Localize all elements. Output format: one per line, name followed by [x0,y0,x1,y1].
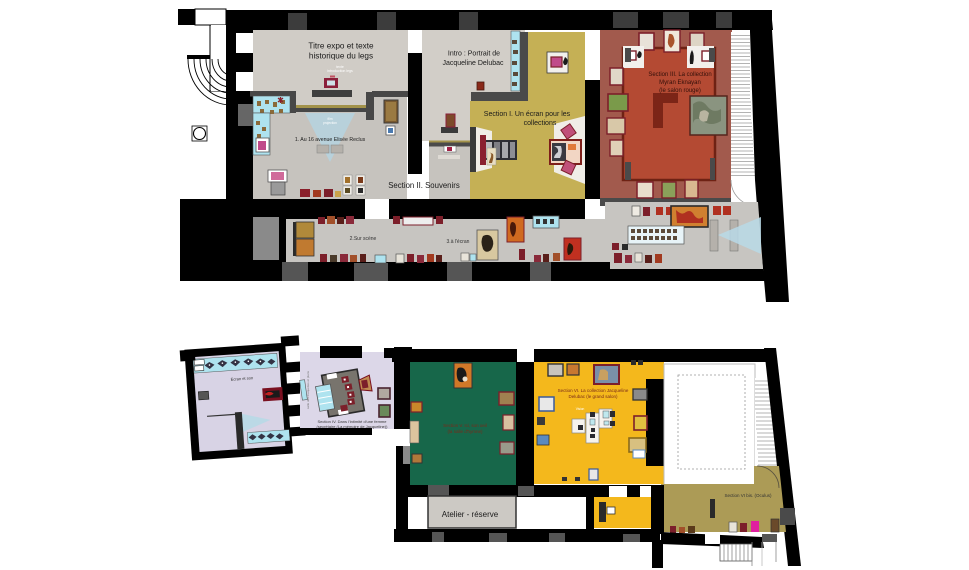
svg-text:Section I. Un écran pour les: Section I. Un écran pour les [484,111,571,118]
svg-text:Vision: Vision [576,407,585,411]
svg-text:(secrétaire (La mémoire de Jac: (secrétaire (La mémoire de Jacqueline)) [317,424,389,429]
svg-text:Intro : Portrait de: Intro : Portrait de [448,51,500,58]
svg-text:Jacqueline Delubac: Jacqueline Delubac [442,60,504,67]
svg-text:Delubac (le grand salon): Delubac (le grand salon) [568,394,618,399]
svg-text:Section III. La collection: Section III. La collection [648,72,711,78]
svg-text:Section VI bis. (Oculus): Section VI bis. (Oculus) [724,493,772,498]
svg-text:collections: collections [524,120,557,127]
svg-text:(la salle d'hymne): (la salle d'hymne) [447,429,483,434]
svg-text:1. Au 16 avenue Elisée Reclus: 1. Au 16 avenue Elisée Reclus [295,137,366,143]
svg-text:projection: projection [323,121,337,125]
svg-text:(le salon rouge): (le salon rouge) [659,88,701,94]
svg-text:salle des maquettes et plans: salle des maquettes et plans [306,370,310,409]
svg-text:2.Sur scène: 2.Sur scène [350,236,377,242]
svg-text:3.à l'écran: 3.à l'écran [447,239,470,245]
svg-text:Section II. Souvenirs: Section II. Souvenirs [388,181,460,190]
svg-text:introduction legs: introduction legs [327,69,353,73]
svg-text:Section V. Ici, son oeil: Section V. Ici, son oeil [443,423,487,428]
svg-text:Myran Eknayan: Myran Eknayan [659,80,701,86]
svg-text:Section VI. La collection Jacq: Section VI. La collection Jacqueline [558,388,629,393]
svg-text:Titre expo et texte: Titre expo et texte [308,42,374,51]
svg-text:historique du legs: historique du legs [309,52,373,61]
svg-text:Atelier - réserve: Atelier - réserve [442,510,499,519]
